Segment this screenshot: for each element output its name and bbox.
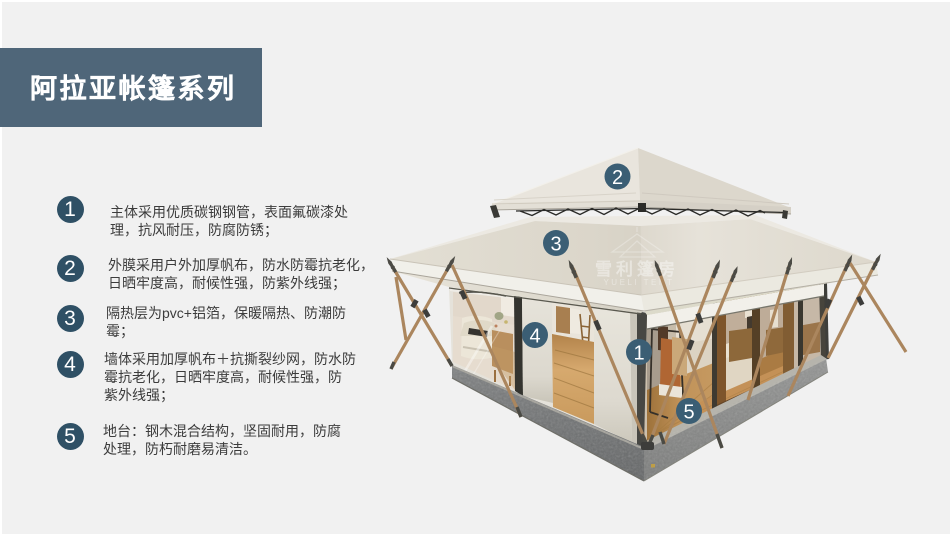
svg-text:5: 5 [683, 401, 694, 423]
svg-text:4: 4 [529, 325, 540, 347]
svg-text:3: 3 [550, 233, 561, 255]
svg-text:雪利篷房: 雪利篷房 [595, 259, 679, 279]
svg-text:1: 1 [633, 342, 644, 364]
svg-text:2: 2 [612, 167, 623, 189]
